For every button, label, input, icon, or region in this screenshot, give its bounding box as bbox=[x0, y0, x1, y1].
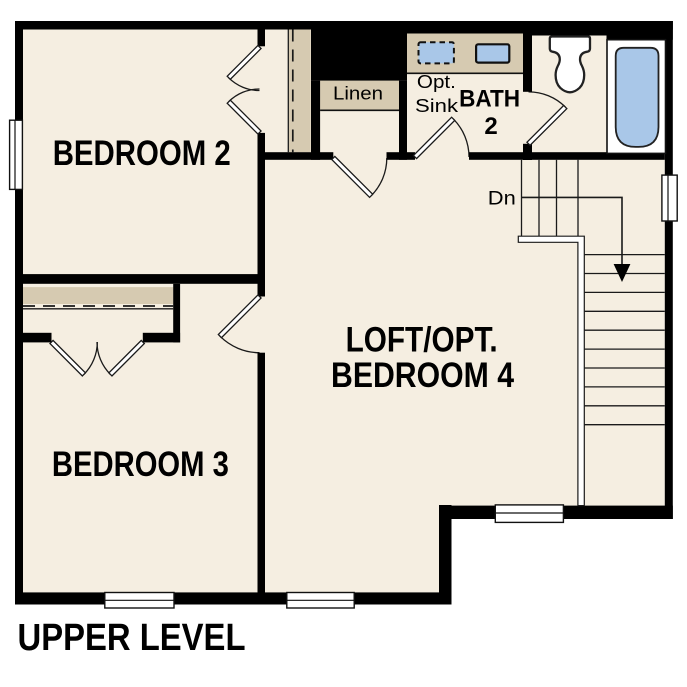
svg-text:Linen: Linen bbox=[333, 84, 383, 104]
svg-text:Dn: Dn bbox=[488, 187, 516, 209]
svg-text:Sink: Sink bbox=[415, 96, 459, 116]
svg-text:BEDROOM 2: BEDROOM 2 bbox=[53, 134, 231, 173]
svg-text:BATH: BATH bbox=[459, 86, 520, 113]
svg-text:BEDROOM 3: BEDROOM 3 bbox=[52, 445, 229, 484]
svg-text:BEDROOM 4: BEDROOM 4 bbox=[331, 356, 514, 395]
svg-text:UPPER LEVEL: UPPER LEVEL bbox=[18, 617, 246, 659]
svg-text:2: 2 bbox=[484, 113, 497, 140]
svg-text:LOFT/OPT.: LOFT/OPT. bbox=[346, 321, 498, 360]
svg-text:Opt.: Opt. bbox=[417, 72, 456, 92]
